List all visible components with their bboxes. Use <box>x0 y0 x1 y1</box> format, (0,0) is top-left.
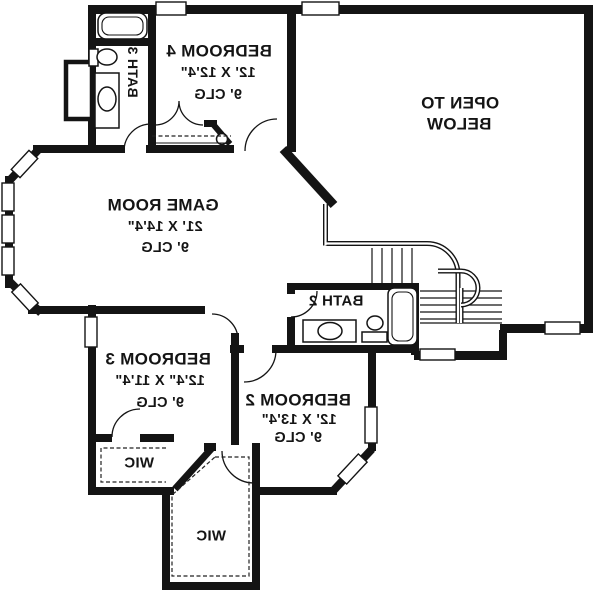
bedroom2-bottom-wall <box>257 487 337 495</box>
wic1-door <box>112 409 140 437</box>
wic1-bottom-wall <box>88 487 174 495</box>
wic2-east-wall <box>252 443 260 590</box>
bath2-label: BATH 2 <box>309 294 364 309</box>
gameroom-bottom-wall <box>28 306 205 314</box>
chimney-bump-out <box>66 62 92 119</box>
wic-bedroom2-label: WIC <box>196 529 226 544</box>
window-bay-3 <box>2 247 14 275</box>
game-room-dims: 21' X 14'4" <box>127 220 202 235</box>
bedroom2-dims: 12' X 13'4" <box>261 413 336 428</box>
window-landing <box>420 349 455 360</box>
bath3-sink <box>98 87 116 111</box>
bath3-toilet-bowl <box>97 49 117 65</box>
window-bedroom3-west <box>85 317 97 347</box>
bedroom3-bottom-wall-a <box>88 434 112 442</box>
window-bay-1 <box>2 183 14 211</box>
bedroom4-door <box>245 119 277 151</box>
window-bedroom2-east <box>365 407 377 443</box>
bedroom3-bottom-wall-b <box>140 434 174 442</box>
window-bedroom2-chamfer <box>338 454 367 484</box>
stair-upper-risers <box>372 248 412 284</box>
right-exterior-wall <box>584 5 593 333</box>
open-below-label-2: BELOW <box>427 116 492 133</box>
bedroom4-east-wall <box>287 5 296 152</box>
bedroom4-ceiling: 9' CLG <box>194 88 242 103</box>
bath2-toilet-tank <box>362 332 387 342</box>
bedroom2-label: BEDROOM 2 <box>245 392 351 409</box>
bedroom3-dims: 12'4" X 11'4" <box>115 374 205 389</box>
floor-plan: BEDROOM 4 12' X 12'4" 9' CLG OPEN TO BEL… <box>0 0 600 593</box>
bedroom4-closet-bifold <box>155 101 203 125</box>
game-room-label: GAME ROOM <box>107 197 218 214</box>
bath3-east-wall <box>148 5 156 153</box>
bath3-label: BATH 3 <box>126 46 140 97</box>
bedroom2-bedroom3-divider <box>231 333 239 445</box>
bedroom3-ceiling: 9' CLG <box>136 396 184 411</box>
window-bay-top <box>11 150 38 177</box>
floor-plan-drawing <box>0 0 600 593</box>
window-bay-2 <box>2 215 14 243</box>
bedroom2-door <box>244 350 276 382</box>
wic2-bottom-wall <box>162 582 260 590</box>
bath2-toilet-bowl <box>367 316 383 330</box>
gameroom-top-wall <box>33 145 125 153</box>
wic2-west-wall <box>162 489 170 590</box>
window-top-2 <box>302 2 339 15</box>
bath2-west-wall-a <box>287 283 295 294</box>
game-room-ceiling: 9' CLG <box>141 241 189 256</box>
closet-bottom-wall <box>146 145 234 153</box>
bedroom3-label: BEDROOM 3 <box>105 351 211 368</box>
window-top-1 <box>156 2 186 15</box>
bath2-west-wall-b <box>287 317 295 353</box>
gameroom-openbelow-diagonal <box>283 149 334 205</box>
bedroom4-dims: 12' X 12'4" <box>180 66 255 81</box>
wic-bedroom3-label: WIC <box>124 456 154 471</box>
open-below-label-1: OPEN TO <box>421 95 499 112</box>
stair-lower-treads-col1 <box>420 291 458 319</box>
bath2-sink <box>318 323 342 340</box>
window-bay-bottom <box>12 284 39 311</box>
bedroom4-label: BEDROOM 4 <box>166 43 272 60</box>
bedroom2-ceiling: 9' CLG <box>274 431 322 446</box>
window-open-below <box>545 322 580 334</box>
wic1-diagonal-wall <box>175 448 212 489</box>
